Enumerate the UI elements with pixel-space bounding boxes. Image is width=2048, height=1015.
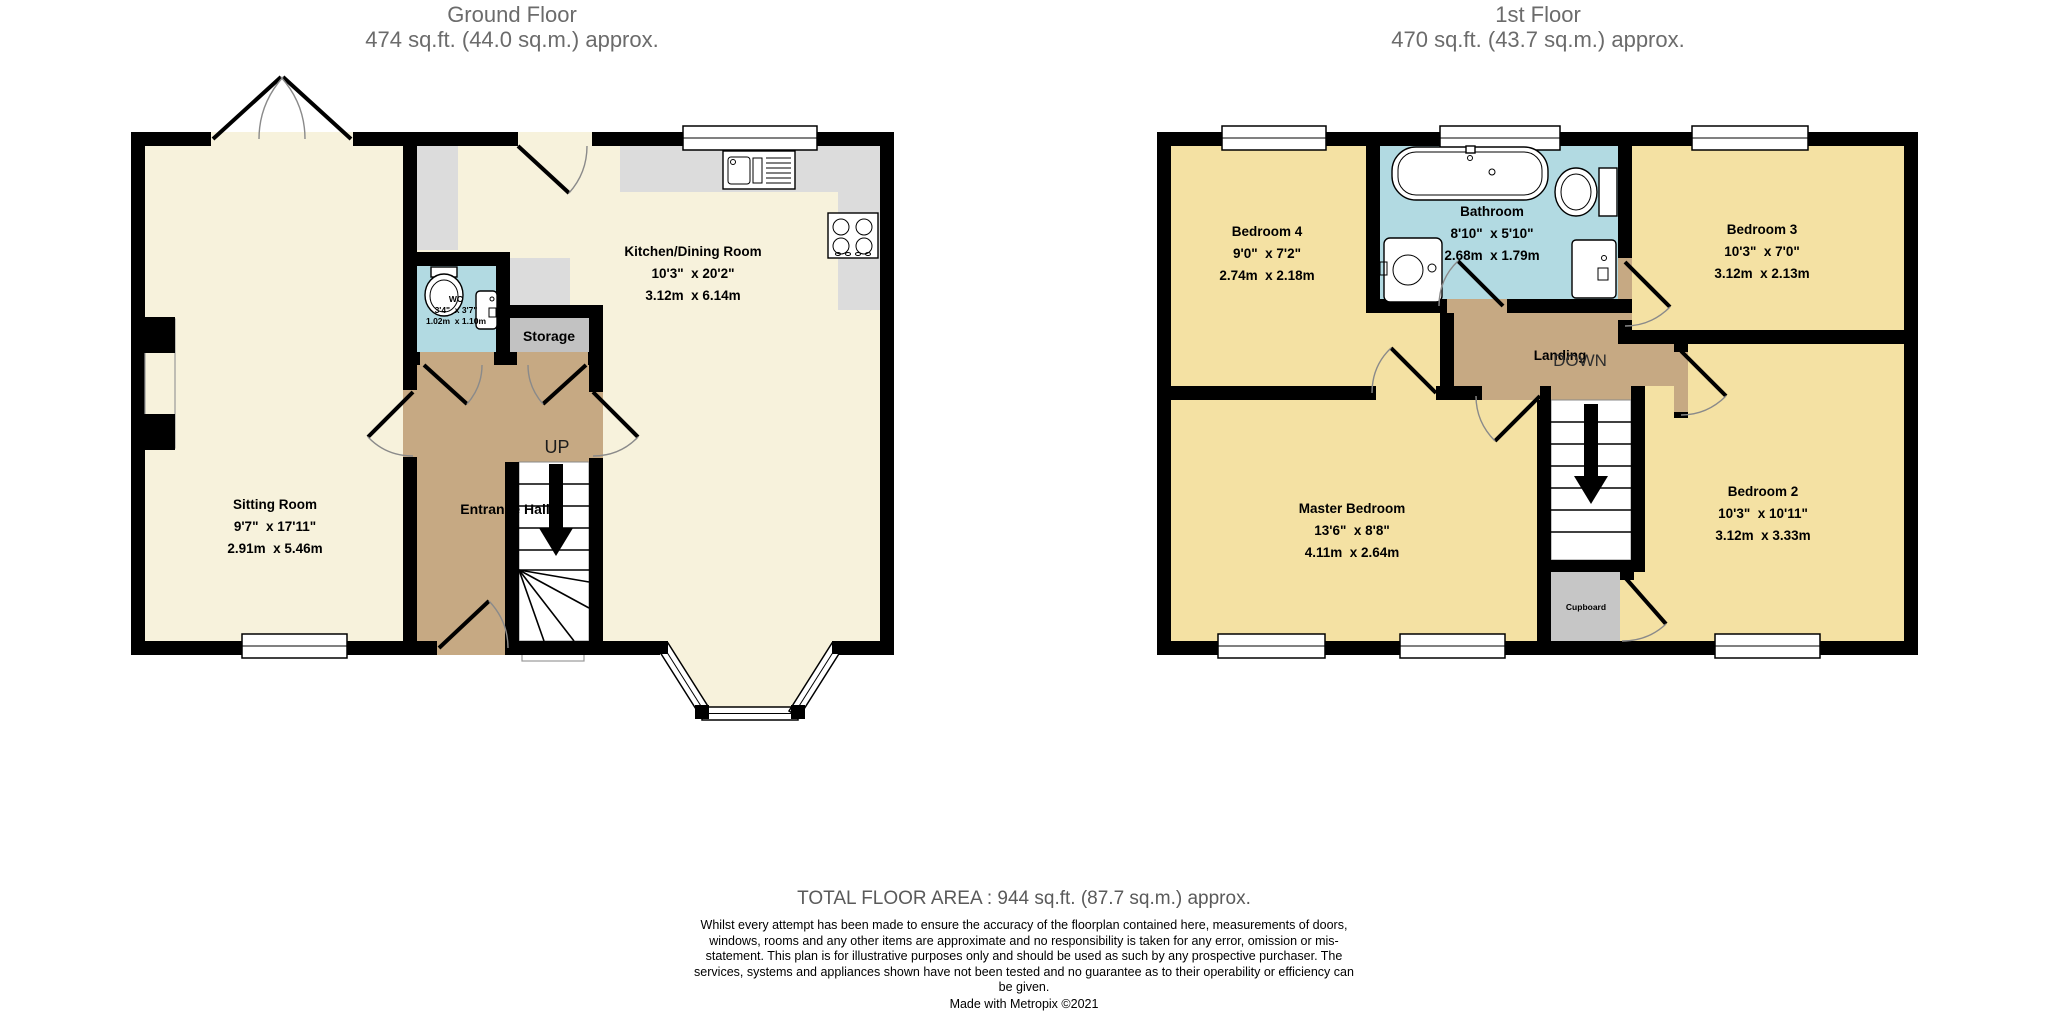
up-label: UP <box>544 437 569 457</box>
footer: TOTAL FLOOR AREA : 944 sq.ft. (87.7 sq.m… <box>0 888 2048 1011</box>
total-floor-area: TOTAL FLOOR AREA : 944 sq.ft. (87.7 sq.m… <box>0 888 2048 910</box>
bedroom3-label: Bedroom 3 <box>1727 222 1798 237</box>
bathroom-label: Bathroom <box>1460 204 1524 219</box>
bedroom2-window <box>1715 634 1820 658</box>
kitchen-sink-icon <box>723 151 795 189</box>
svg-text:4.11m x 2.64m: 4.11m x 2.64m <box>1305 545 1400 560</box>
ground-floor-plan: Sitting Room 9'7" x 17'11" 2.91m x 5.46m… <box>131 77 894 720</box>
hob-icon <box>828 213 878 258</box>
bath-icon <box>1392 146 1548 200</box>
bathroom-toilet-icon <box>1555 168 1617 216</box>
svg-text:10'3" x 10'11": 10'3" x 10'11" <box>1718 506 1808 521</box>
storage-label: Storage <box>523 328 575 344</box>
sitting-room-label: Sitting Room <box>233 497 317 512</box>
master-bedroom-window-1 <box>1218 634 1325 658</box>
down-label: DOWN <box>1553 351 1607 370</box>
down-arrow-shaft <box>1584 404 1598 476</box>
svg-text:13'6" x 8'8": 13'6" x 8'8" <box>1314 523 1390 538</box>
bathroom-basin-icon <box>1572 240 1616 298</box>
bedroom4-window <box>1222 126 1326 150</box>
french-doors <box>213 77 351 139</box>
svg-text:1.02m x 1.10m: 1.02m x 1.10m <box>426 316 486 326</box>
bedroom2-label: Bedroom 2 <box>1728 484 1799 499</box>
disclaimer-text: Whilst every attempt has been made to en… <box>694 918 1354 996</box>
entrance-hall-label: Entrance Hall <box>460 501 549 517</box>
sitting-room-window <box>242 634 347 658</box>
wc-label: WC <box>449 294 463 304</box>
svg-text:3.12m x 6.14m: 3.12m x 6.14m <box>645 288 740 303</box>
svg-text:3.12m x 3.33m: 3.12m x 3.33m <box>1715 528 1810 543</box>
svg-text:10'3" x 7'0": 10'3" x 7'0" <box>1724 244 1800 259</box>
floorplan-page: Ground Floor 474 sq.ft. (44.0 sq.m.) app… <box>0 0 2048 1015</box>
svg-text:9'7" x 17'11": 9'7" x 17'11" <box>234 519 316 534</box>
shower-unit-icon <box>1380 238 1442 302</box>
svg-text:9'0" x 7'2": 9'0" x 7'2" <box>1233 246 1301 261</box>
svg-text:10'3" x 20'2": 10'3" x 20'2" <box>651 266 734 281</box>
svg-text:2.91m x 5.46m: 2.91m x 5.46m <box>227 541 322 556</box>
svg-text:2.74m x 2.18m: 2.74m x 2.18m <box>1219 268 1314 283</box>
master-bedroom-window-2 <box>1400 634 1505 658</box>
bedroom4-label: Bedroom 4 <box>1232 224 1303 239</box>
first-floor-plan: Bedroom 4 9'0" x 7'2" 2.74m x 2.18m Bath… <box>1157 126 1918 658</box>
svg-text:3.12m x 2.13m: 3.12m x 2.13m <box>1714 266 1809 281</box>
up-arrow-shaft <box>549 464 563 528</box>
cupboard-label: Cupboard <box>1566 602 1606 612</box>
metropix-credit: Made with Metropix ©2021 <box>0 997 2048 1011</box>
stairs-down-icon <box>1551 400 1631 560</box>
svg-text:8'10" x 5'10": 8'10" x 5'10" <box>1450 226 1533 241</box>
kitchen-window <box>683 126 817 150</box>
svg-text:2.68m x 1.79m: 2.68m x 1.79m <box>1444 248 1539 263</box>
kitchen-dining-label: Kitchen/Dining Room <box>624 244 761 259</box>
master-bedroom-label: Master Bedroom <box>1299 501 1406 516</box>
svg-text:3'4" x 3'7": 3'4" x 3'7" <box>435 305 478 315</box>
bedroom3-window <box>1692 126 1808 150</box>
stairs-up-icon <box>519 462 589 661</box>
floorplan-drawing: Sitting Room 9'7" x 17'11" 2.91m x 5.46m… <box>0 0 2048 1015</box>
